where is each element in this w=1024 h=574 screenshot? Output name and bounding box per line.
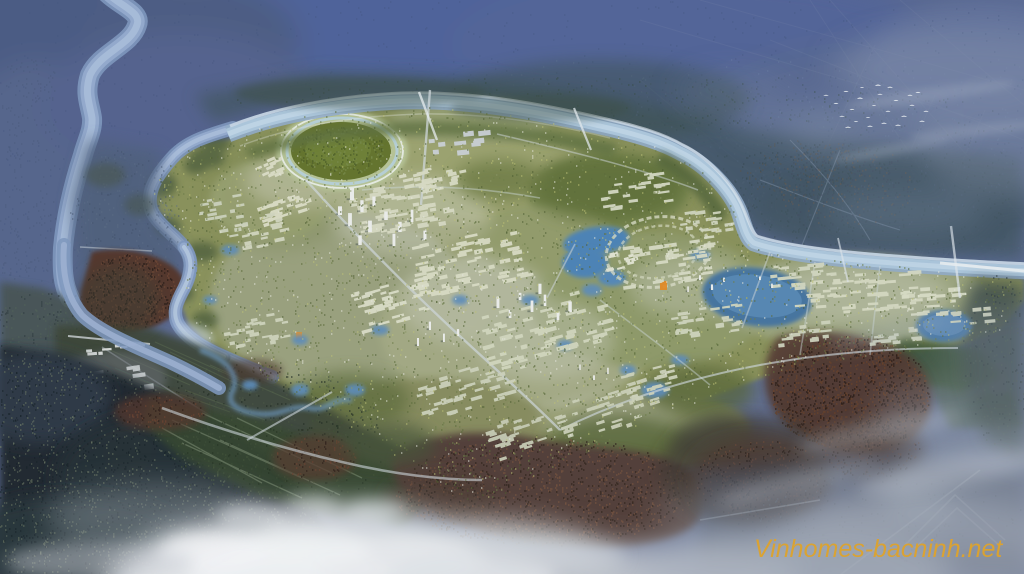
svg-text:Vinhomes-bacninh.net: Vinhomes-bacninh.net (754, 535, 1003, 563)
